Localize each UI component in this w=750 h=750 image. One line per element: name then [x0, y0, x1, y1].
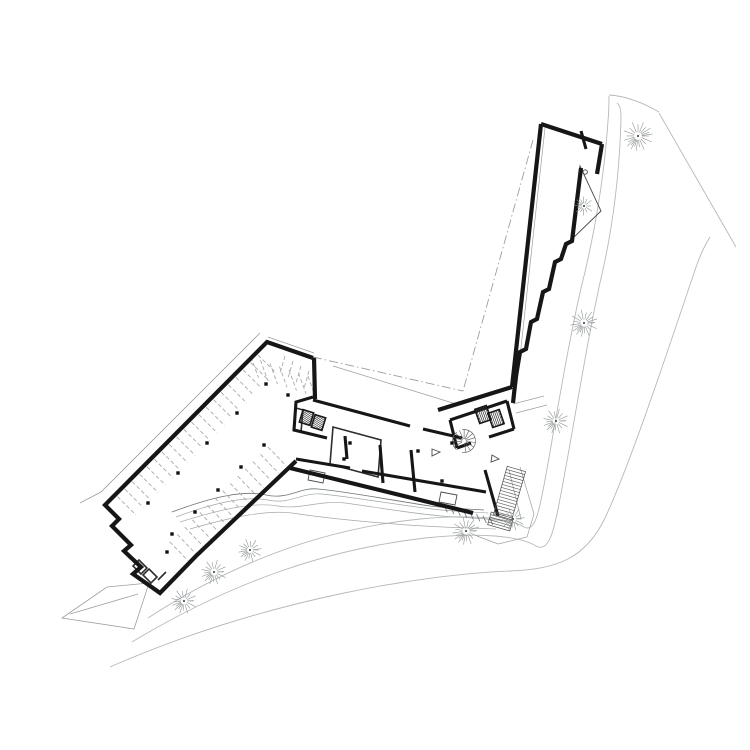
- floor-plan-page: [0, 0, 750, 750]
